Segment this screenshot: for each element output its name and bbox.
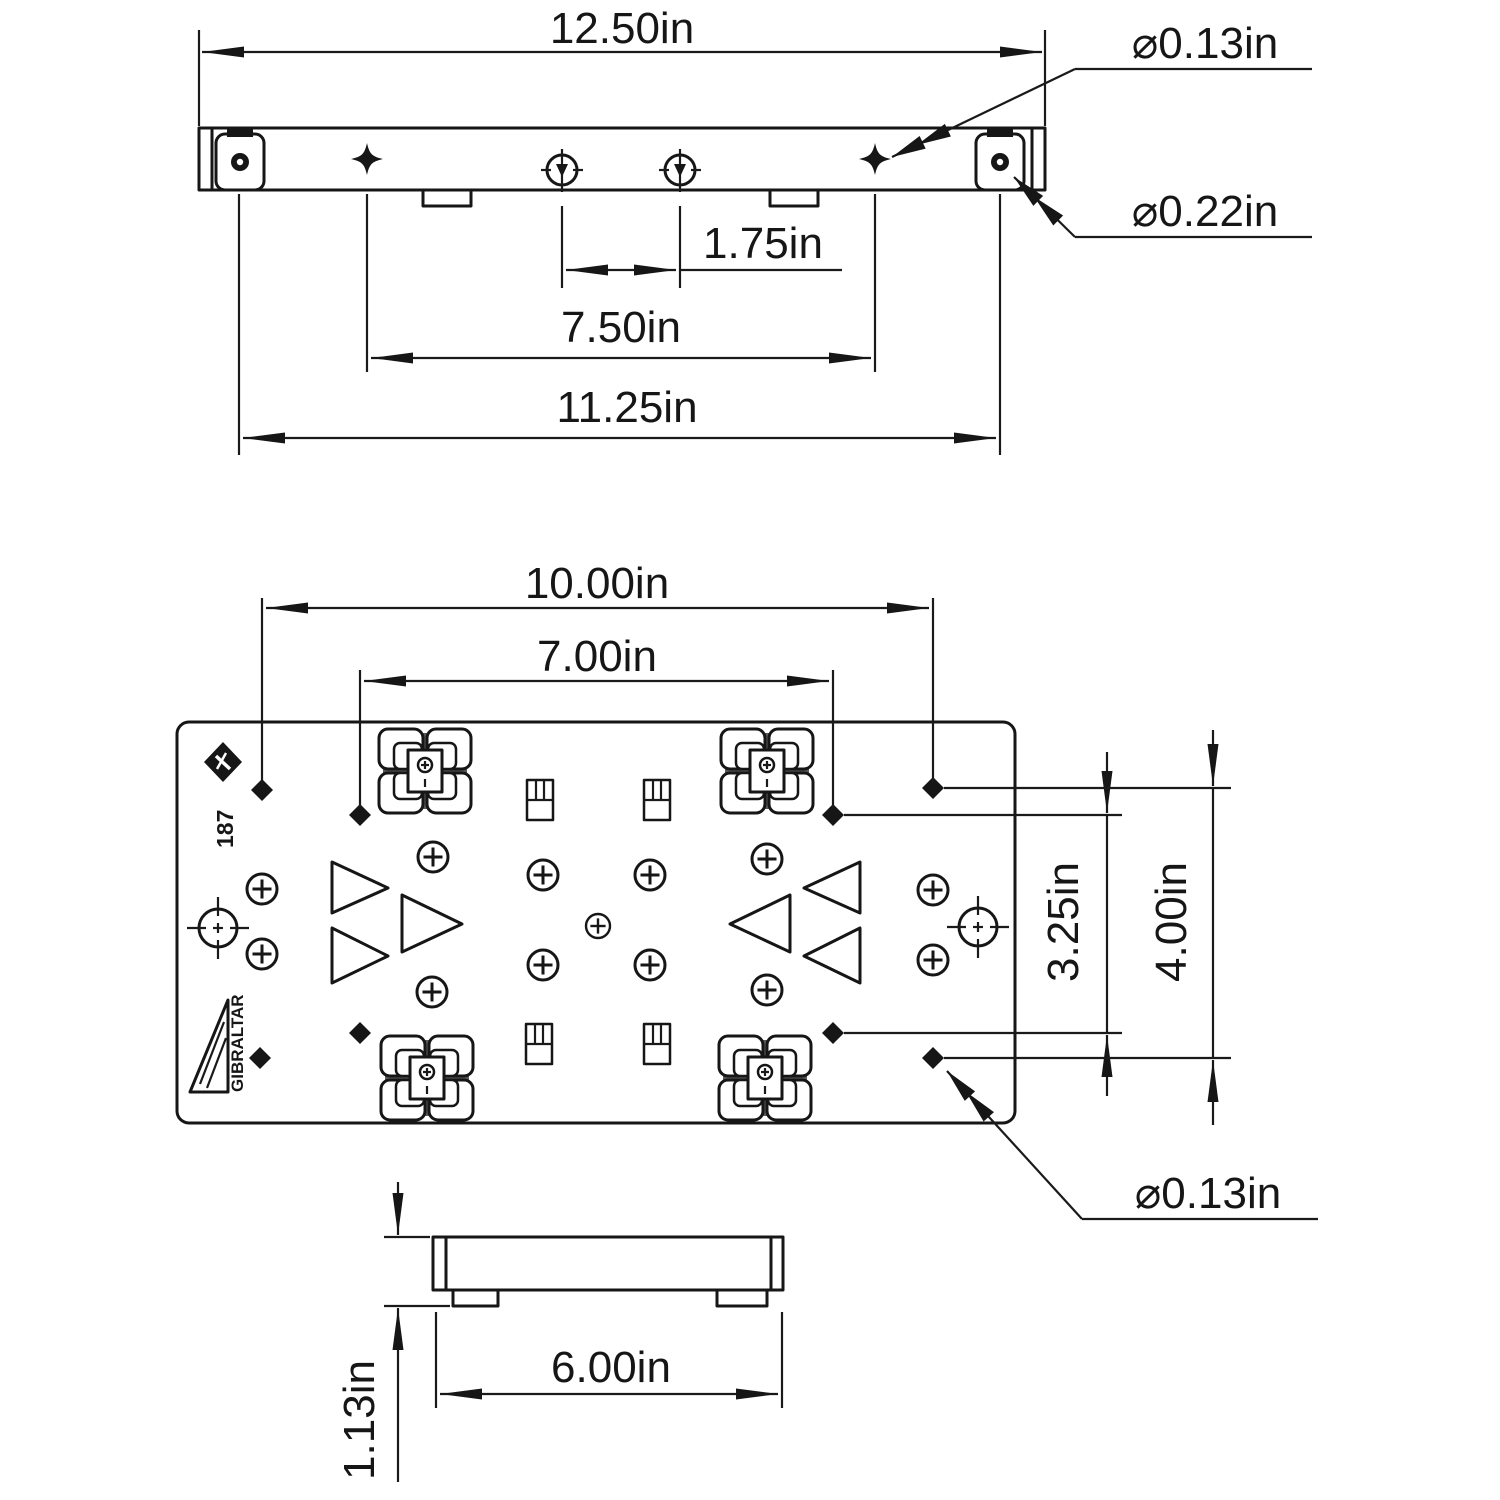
mount-pad	[379, 729, 471, 813]
dim-label-end-hole-spacing: 11.25in	[556, 383, 697, 432]
leader-corner-hole-dia: ⌀0.22in	[1014, 177, 1312, 237]
screw-head	[752, 844, 782, 874]
corner-hole-right	[991, 153, 1009, 171]
rail-right-tab	[770, 190, 818, 206]
dim-base-width: 6.00in	[436, 1312, 782, 1408]
rail-left-tab	[423, 190, 471, 206]
dim-label-base-width: 6.00in	[551, 1343, 671, 1392]
grid-slot	[644, 780, 670, 820]
side-right-foot	[717, 1290, 767, 1306]
screw-head	[247, 874, 277, 904]
screw-head	[752, 975, 782, 1005]
grid-slot	[527, 780, 553, 820]
side-body	[433, 1237, 783, 1290]
screw-head	[635, 950, 665, 980]
front-view: 187 GIBRALTAR 10.00in 7.00in	[177, 559, 1318, 1219]
screw-head	[247, 939, 277, 969]
dim-overall-width: 12.50in	[199, 4, 1045, 126]
drawing-canvas: 12.50in 1.75in 7.50in 11.25in	[0, 0, 1500, 1500]
dim-label-mid-hole-spacing: 7.50in	[561, 303, 681, 352]
dim-height: 1.13in	[335, 1182, 450, 1482]
screw-head	[417, 977, 447, 1007]
side-view: 1.13in 6.00in	[335, 1182, 783, 1482]
mount-pad	[719, 1036, 811, 1120]
screw-head	[528, 860, 558, 890]
dim-label-overall-width: 12.50in	[550, 4, 694, 53]
top-view: 12.50in 1.75in 7.50in 11.25in	[199, 4, 1312, 455]
corner-hole-left	[231, 153, 249, 171]
rail-outline	[199, 128, 1045, 190]
mount-pad	[381, 1036, 473, 1120]
dim-label-height: 1.13in	[335, 1360, 384, 1480]
screw-head-center	[586, 914, 610, 938]
grid-slot	[644, 1024, 670, 1064]
dim-label-corner-hole-dia: ⌀0.22in	[1132, 187, 1278, 236]
dim-slot-spacing: 1.75in	[562, 206, 842, 288]
dim-label-small-hole-dia: ⌀0.13in	[1132, 19, 1278, 68]
grid-slot	[526, 1024, 552, 1064]
dim-label-inner-hole-spacing-y: 3.25in	[1039, 862, 1088, 982]
dim-label-slot-spacing: 1.75in	[703, 219, 823, 268]
screw-head	[918, 875, 948, 905]
dim-label-plate-hole-dia: ⌀0.13in	[1135, 1169, 1281, 1218]
brand-text: GIBRALTAR	[228, 994, 247, 1092]
side-left-foot	[453, 1290, 498, 1306]
dim-label-inner-hole-spacing-x: 7.00in	[537, 632, 657, 681]
screw-head	[635, 860, 665, 890]
part-number-text: 187	[212, 810, 238, 848]
technical-drawing-page: 12.50in 1.75in 7.50in 11.25in	[0, 0, 1500, 1500]
mount-pad	[721, 729, 813, 813]
screw-head	[918, 945, 948, 975]
dim-label-outer-hole-spacing-y: 4.00in	[1147, 862, 1196, 982]
screw-head	[528, 950, 558, 980]
screw-head	[418, 842, 448, 872]
dim-label-outer-hole-spacing-x: 10.00in	[525, 559, 669, 608]
